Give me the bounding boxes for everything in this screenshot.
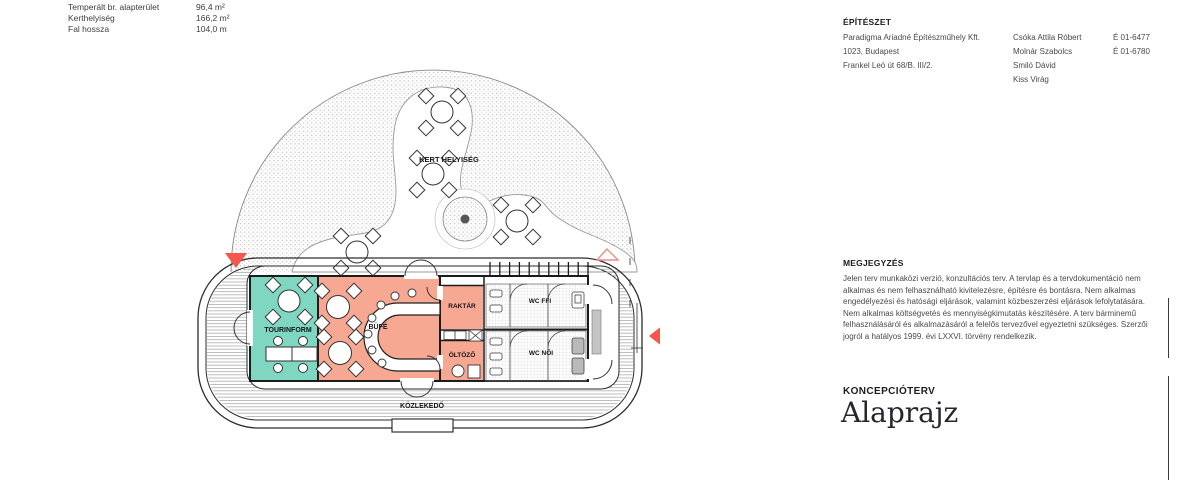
license-number: É 01-6477 [1113,31,1150,45]
label-wc-ffi: WC FFI [529,298,552,305]
floor-plan: KERT HELYISÉG [190,52,660,444]
label-wc-noi: WC NŐI [529,348,553,357]
notes-body: Jelen terv munkaközi verzió, konzultáció… [843,273,1155,343]
company-info: Paradigma Ariadné Építészműhely Kft. 102… [843,31,980,73]
architect-names: Csóka Attila Róbert Molnár Szabolcs Smil… [1013,31,1081,87]
stat-value: 166,2 m² [196,13,230,24]
label-kert-helyiseg: KERT HELYISÉG [419,155,479,164]
license-number: É 01-6780 [1113,45,1150,59]
label-tourinform: TOURINFORM [264,327,311,334]
label-bufe: BÜFÉ [368,322,387,331]
sheet-border-line [1168,298,1169,358]
garden-dome: KERT HELYISÉG [231,70,637,276]
notes-title: MEGJEGYZÉS [843,258,904,268]
stat-value: 104,0 m [196,24,227,35]
architect-name: Smiló Dávid [1013,59,1081,73]
entrance-step [392,419,453,432]
marker-entrance-right [649,325,660,347]
architect-name: Kiss Virág [1013,73,1081,87]
stat-label: Kerthelyiség [68,13,196,24]
label-oltozo: ÖLTÖZŐ [449,350,476,359]
stat-value: 96,4 m² [196,2,225,13]
stat-row: Temperált br. alapterület 96,4 m² [68,2,230,13]
architect-name: Csóka Attila Róbert [1013,31,1081,45]
area-statistics: Temperált br. alapterület 96,4 m² Kerthe… [68,2,230,34]
stat-row: Kerthelyiség 166,2 m² [68,13,230,24]
architect-name: Molnár Szabolcs [1013,45,1081,59]
sheet: { "stats": { "rows": [ {"label": "Temper… [0,0,1200,480]
drawing-title: Alaprajz [841,396,958,429]
company-name: Paradigma Ariadné Építészműhely Kft. [843,31,980,45]
label-raktar: RAKTÁR [448,301,476,310]
titleblock-section-title: ÉPÍTÉSZET [843,17,891,27]
sheet-border-line [1168,376,1169,480]
kitchen-counter [444,330,482,341]
company-address-1: 1023, Budapest [843,45,980,59]
architect-licenses: É 01-6477 É 01-6780 [1113,31,1150,59]
company-address-2: Frankel Leó út 68/B. III/2. [843,59,980,73]
label-kozlekedo: KÖZLEKEDŐ [400,401,445,410]
stat-row: Fal hossza 104,0 m [68,24,230,35]
stat-label: Fal hossza [68,24,196,35]
stat-label: Temperált br. alapterület [68,2,196,13]
garden-tree [443,197,487,241]
